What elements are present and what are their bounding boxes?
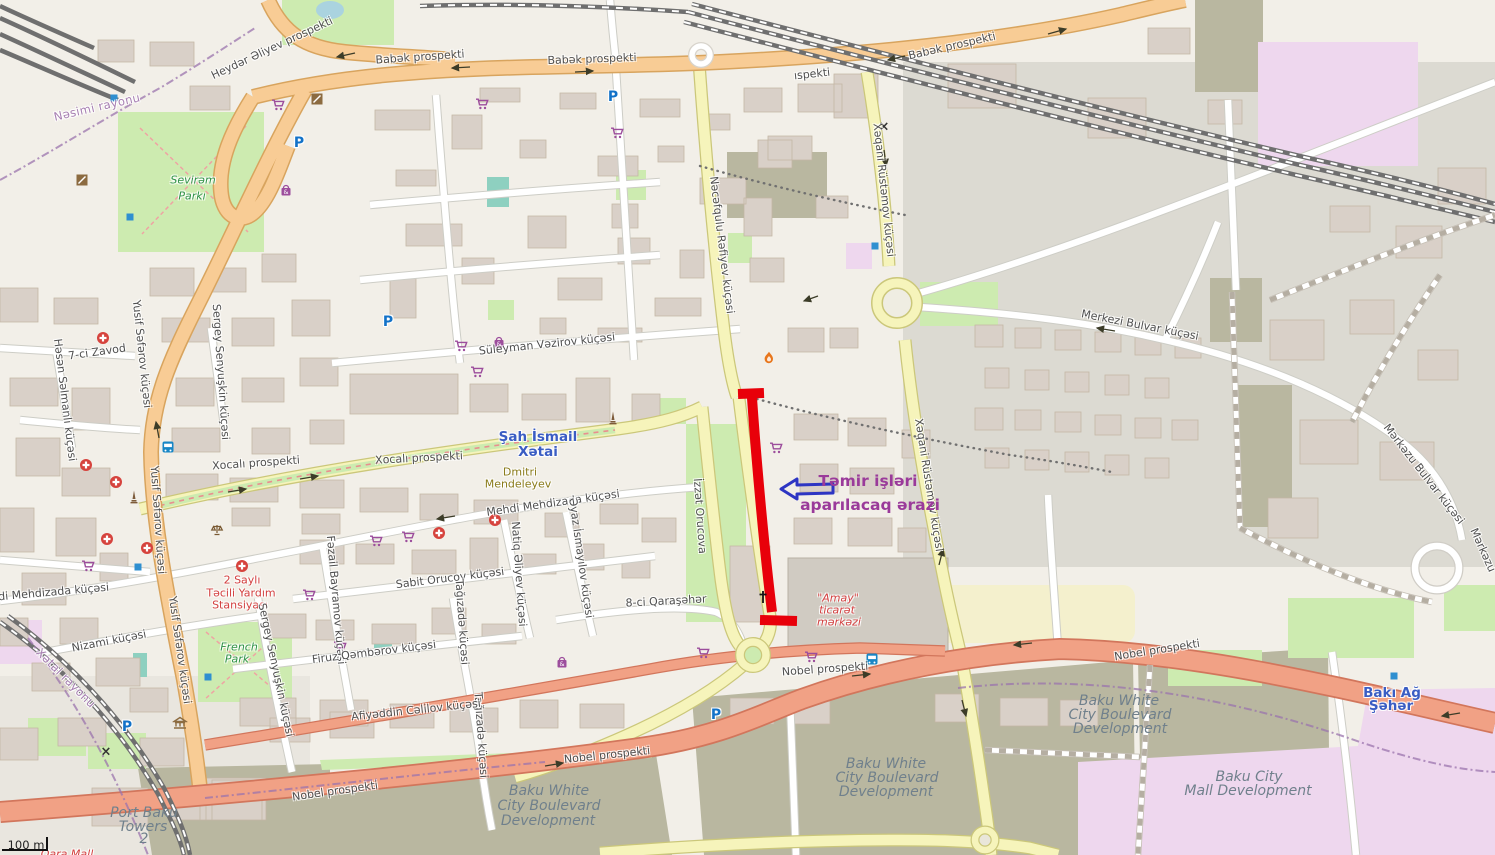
map-base-svg <box>0 0 1495 855</box>
pond <box>316 1 344 19</box>
amay-mall-building <box>788 558 948 652</box>
scale-bar <box>2 837 48 851</box>
map-canvas[interactable]: PPPPP&&&×× Babək prospektiBabək prospekt… <box>0 0 1495 855</box>
